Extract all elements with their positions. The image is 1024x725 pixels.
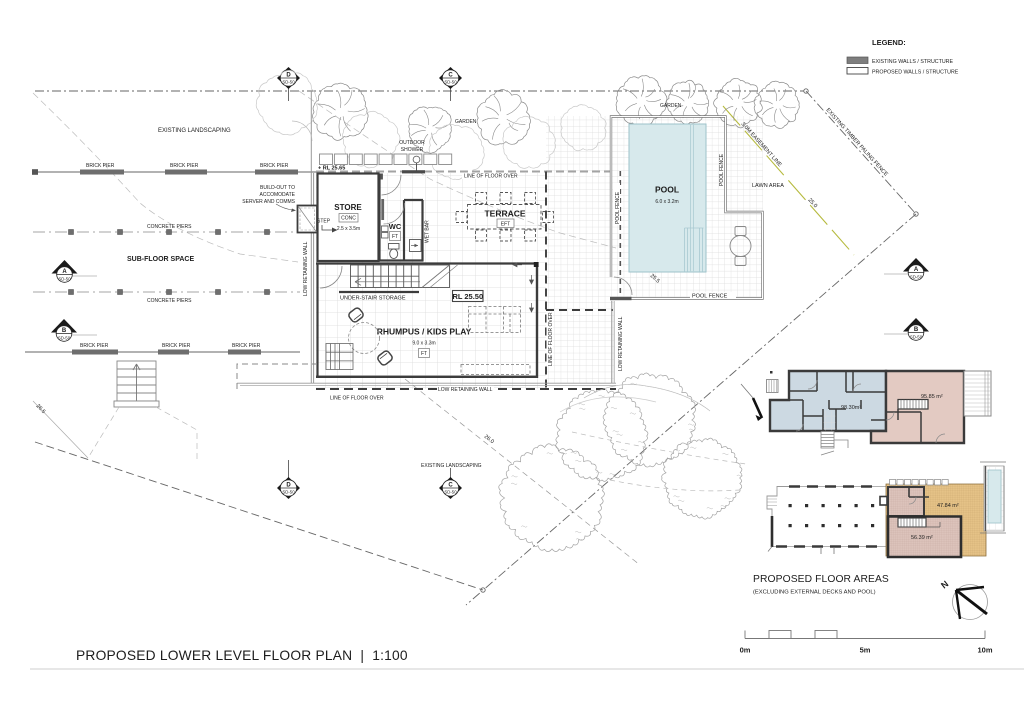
svg-text:FT: FT	[421, 351, 427, 357]
svg-text:EXISTING WALLS / STRUCTURE: EXISTING WALLS / STRUCTURE	[872, 59, 954, 65]
svg-text:9.0 x 3.3m: 9.0 x 3.3m	[412, 341, 435, 347]
svg-text:POOL FENCE: POOL FENCE	[615, 191, 621, 224]
svg-text:2.5 x 3.5m: 2.5 x 3.5m	[337, 226, 360, 232]
svg-text:D: D	[286, 483, 291, 489]
svg-text:LINE OF FLOOR OVER: LINE OF FLOOR OVER	[464, 174, 518, 180]
svg-text:BRICK PIER: BRICK PIER	[80, 343, 109, 349]
svg-text:SD-50: SD-50	[910, 335, 923, 340]
svg-text:0m: 0m	[740, 646, 751, 655]
svg-text:BRICK PIER: BRICK PIER	[260, 163, 289, 169]
svg-text:SD-50: SD-50	[444, 80, 457, 85]
svg-text:EFT: EFT	[501, 222, 510, 228]
svg-text:TERRACE: TERRACE	[484, 209, 525, 219]
svg-text:OUTDOOR: OUTDOOR	[399, 140, 425, 146]
svg-text:SD-50: SD-50	[444, 490, 457, 495]
svg-text:SUB-FLOOR SPACE: SUB-FLOOR SPACE	[127, 256, 194, 263]
svg-text:STEP: STEP	[317, 219, 331, 225]
svg-text:5m: 5m	[860, 646, 871, 655]
svg-text:D: D	[286, 73, 291, 79]
svg-text:RL 25.50: RL 25.50	[452, 292, 483, 301]
svg-text:LINE OF FLOOR OVER: LINE OF FLOOR OVER	[548, 312, 554, 366]
svg-text:B: B	[914, 327, 919, 333]
svg-text:CONCRETE PIERS: CONCRETE PIERS	[147, 298, 192, 304]
svg-text:LOW RETAINING WALL: LOW RETAINING WALL	[618, 316, 624, 371]
svg-text:BUILD-OUT TO: BUILD-OUT TO	[260, 185, 295, 191]
svg-text:BRICK PIER: BRICK PIER	[86, 163, 115, 169]
svg-text:47.84 m²: 47.84 m²	[937, 503, 959, 509]
svg-text:LAWN AREA: LAWN AREA	[752, 183, 784, 189]
svg-text:LEGEND:: LEGEND:	[872, 38, 906, 47]
svg-text:POOL FENCE: POOL FENCE	[692, 294, 728, 300]
svg-text:WC: WC	[389, 222, 402, 231]
svg-text:SD-50: SD-50	[282, 490, 295, 495]
svg-text:ACCOMODATE: ACCOMODATE	[260, 192, 296, 198]
svg-text:SD-50: SD-50	[58, 277, 71, 282]
svg-text:SD-50: SD-50	[282, 80, 295, 85]
svg-text:10m: 10m	[977, 646, 992, 655]
svg-text:98.30m²: 98.30m²	[841, 405, 861, 411]
svg-text:SD-50: SD-50	[58, 336, 71, 341]
svg-text:GARDEN: GARDEN	[660, 103, 682, 109]
svg-text:C: C	[448, 483, 453, 489]
svg-text:BRICK PIER: BRICK PIER	[170, 163, 199, 169]
svg-text:C: C	[448, 73, 453, 79]
svg-text:PROPOSED LOWER LEVEL FLOOR PLA: PROPOSED LOWER LEVEL FLOOR PLAN | 1:100	[76, 648, 408, 663]
svg-text:WET BAR: WET BAR	[425, 220, 431, 243]
svg-text:SERVER AND COMMS: SERVER AND COMMS	[242, 199, 295, 205]
svg-text:BRICK PIER: BRICK PIER	[232, 343, 261, 349]
svg-text:B: B	[62, 328, 67, 334]
svg-text:BRICK PIER: BRICK PIER	[162, 343, 191, 349]
svg-text:(EXCLUDING EXTERNAL DECKS AND: (EXCLUDING EXTERNAL DECKS AND POOL)	[753, 590, 876, 596]
svg-text:SHOWER: SHOWER	[401, 147, 424, 153]
svg-text:STORE: STORE	[334, 203, 362, 212]
svg-text:56.39 m²: 56.39 m²	[911, 535, 933, 541]
svg-text:POOL FENCE: POOL FENCE	[719, 153, 725, 186]
svg-text:CONCRETE PIERS: CONCRETE PIERS	[147, 224, 192, 230]
svg-text:EXISTING LANDSCAPING: EXISTING LANDSCAPING	[421, 463, 482, 469]
svg-text:FT: FT	[392, 234, 398, 240]
svg-text:LINE OF FLOOR OVER: LINE OF FLOOR OVER	[330, 396, 384, 402]
svg-text:UNDER-STAIR STORAGE: UNDER-STAIR STORAGE	[340, 296, 406, 302]
svg-text:POOL: POOL	[655, 185, 679, 195]
svg-text:SD-50: SD-50	[910, 275, 923, 280]
svg-text:A: A	[62, 269, 67, 275]
svg-text:6.0 x 3.2m: 6.0 x 3.2m	[655, 199, 678, 205]
svg-text:PROPOSED WALLS / STRUCTURE: PROPOSED WALLS / STRUCTURE	[872, 70, 959, 76]
svg-text:EXISTING LANDSCAPING: EXISTING LANDSCAPING	[158, 128, 231, 134]
svg-text:CONC: CONC	[341, 216, 356, 222]
svg-text:RHUMPUS / KIDS PLAY: RHUMPUS / KIDS PLAY	[377, 327, 472, 337]
svg-text:GARDEN: GARDEN	[455, 119, 477, 125]
svg-text:LOW RETAINING WALL: LOW RETAINING WALL	[438, 387, 493, 393]
svg-text:LOW RETAINING WALL: LOW RETAINING WALL	[303, 241, 309, 296]
svg-text:A: A	[914, 267, 919, 273]
svg-text:PROPOSED FLOOR AREAS: PROPOSED FLOOR AREAS	[753, 574, 889, 585]
